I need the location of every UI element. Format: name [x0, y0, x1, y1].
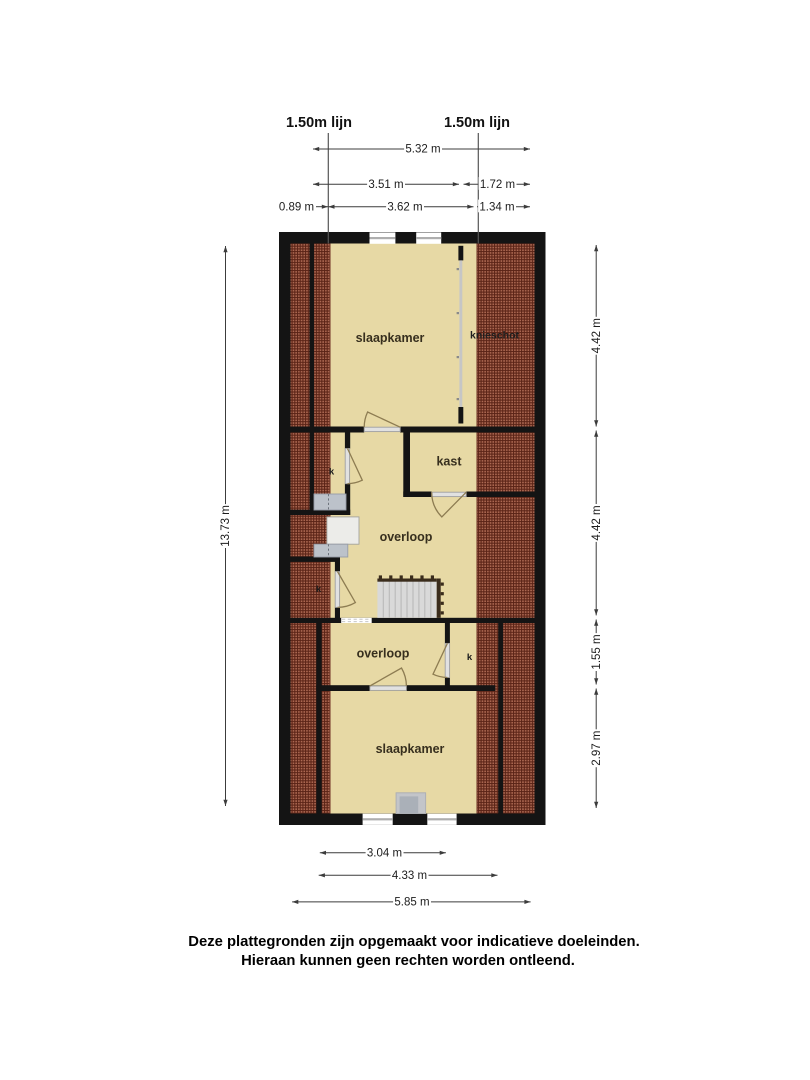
svg-text:kast: kast	[436, 455, 462, 469]
svg-text:1.72 m: 1.72 m	[480, 179, 515, 191]
svg-text:1.50m lijn: 1.50m lijn	[286, 115, 352, 131]
svg-text:k: k	[467, 652, 473, 663]
svg-text:3.62 m: 3.62 m	[387, 201, 422, 213]
svg-text:4.42 m: 4.42 m	[591, 505, 603, 540]
svg-text:Hieraan kunnen geen rechten wo: Hieraan kunnen geen rechten worden ontle…	[241, 953, 575, 969]
svg-text:slaapkamer: slaapkamer	[356, 331, 425, 345]
svg-text:knieschot: knieschot	[470, 330, 520, 342]
svg-text:3.04 m: 3.04 m	[367, 847, 402, 859]
svg-text:13.73 m: 13.73 m	[220, 505, 232, 547]
svg-text:overloop: overloop	[357, 647, 410, 661]
svg-text:Deze plattegronden zijn opgema: Deze plattegronden zijn opgemaakt voor i…	[188, 934, 639, 950]
svg-text:3.51 m: 3.51 m	[368, 179, 403, 191]
svg-text:0.89 m: 0.89 m	[279, 201, 314, 213]
svg-text:4.42 m: 4.42 m	[591, 318, 603, 353]
svg-text:k: k	[329, 467, 335, 478]
svg-text:slaapkamer: slaapkamer	[376, 742, 445, 756]
svg-text:5.85 m: 5.85 m	[394, 897, 429, 909]
svg-text:1.55 m: 1.55 m	[591, 634, 603, 669]
svg-text:5.32 m: 5.32 m	[405, 144, 440, 156]
svg-text:1.50m lijn: 1.50m lijn	[444, 115, 510, 131]
svg-text:2.97 m: 2.97 m	[591, 731, 603, 766]
svg-text:1.34 m: 1.34 m	[479, 201, 514, 213]
svg-text:k: k	[316, 584, 322, 595]
svg-text:overloop: overloop	[380, 530, 433, 544]
svg-text:4.33 m: 4.33 m	[392, 870, 427, 882]
